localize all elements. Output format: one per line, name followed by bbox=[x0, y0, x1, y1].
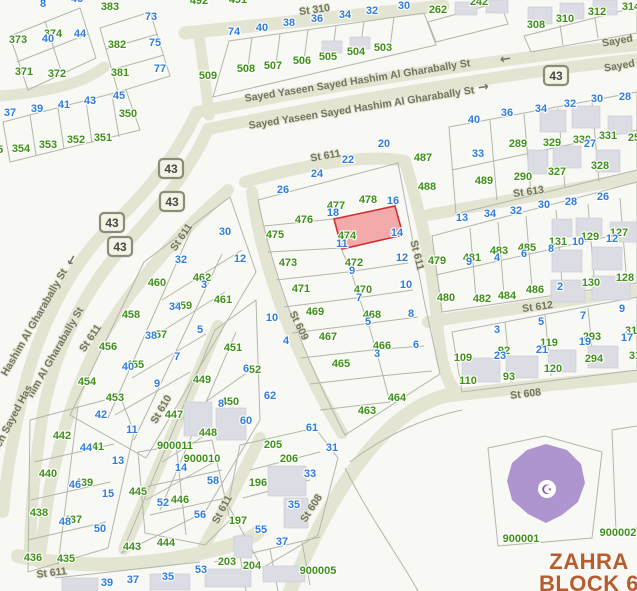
lot-number: 10 bbox=[400, 279, 412, 291]
parcel-number: 109 bbox=[454, 352, 472, 364]
lot-number: 16 bbox=[387, 195, 399, 207]
parcel-number: 128 bbox=[616, 272, 634, 284]
lot-number: 46 bbox=[71, 0, 83, 5]
lot-number: 30 bbox=[219, 226, 231, 238]
parcel-number: 482 bbox=[473, 293, 491, 305]
parcel-number: 435 bbox=[57, 553, 75, 565]
lot-number: 7 bbox=[356, 292, 362, 304]
parcel-number: 471 bbox=[292, 283, 310, 295]
parcel-number: 197 bbox=[229, 515, 247, 527]
lot-number: 11 bbox=[126, 424, 138, 436]
parcel-number: 464 bbox=[388, 392, 407, 404]
parcel-number: 475 bbox=[266, 229, 284, 241]
lot-number: 35 bbox=[162, 571, 174, 583]
parcel-number: 203 bbox=[218, 556, 236, 568]
parcel-number: 438 bbox=[30, 507, 48, 519]
parcel-number: 491 bbox=[229, 0, 247, 6]
lot-number: 61 bbox=[306, 422, 318, 434]
parcel-number: 507 bbox=[264, 60, 282, 72]
parcel-number: 489 bbox=[475, 175, 493, 187]
parcel-number: 448 bbox=[199, 427, 217, 439]
lot-number: 34 bbox=[535, 103, 548, 115]
parcel-number: 460 bbox=[148, 277, 166, 289]
parcel-number: 294 bbox=[585, 353, 604, 365]
lot-number: 60 bbox=[240, 415, 252, 427]
lot-number: 28 bbox=[619, 91, 631, 103]
lot-number: 74 bbox=[228, 26, 241, 38]
lot-number: 34 bbox=[484, 208, 497, 220]
building bbox=[552, 219, 572, 237]
lot-number: 41 bbox=[58, 99, 70, 111]
parcel-number: 205 bbox=[264, 439, 282, 451]
lot-number: 3 bbox=[201, 279, 207, 291]
lot-number: 13 bbox=[112, 455, 124, 467]
lot-number: 24 bbox=[311, 168, 324, 180]
parcel-number: 314 bbox=[622, 1, 637, 13]
parcel-number: 453 bbox=[106, 392, 124, 404]
lot-number: 46 bbox=[69, 479, 81, 491]
parcel-number: 480 bbox=[437, 292, 455, 304]
parcel-number: 329 bbox=[543, 137, 561, 149]
parcel-number: 478 bbox=[359, 194, 377, 206]
lot-number: 77 bbox=[154, 63, 166, 75]
lot-number: 7 bbox=[580, 310, 586, 322]
parcel-number: 331 bbox=[599, 130, 617, 142]
building bbox=[572, 106, 600, 128]
parcel-number: 120 bbox=[544, 363, 562, 375]
lot-number: 58 bbox=[207, 475, 219, 487]
parcel-number: 436 bbox=[24, 552, 42, 564]
parcel-number: 355 bbox=[0, 144, 3, 156]
lot-number: 6 bbox=[243, 363, 249, 375]
mosque-icon: ☪ bbox=[541, 483, 553, 498]
lot-number: 12 bbox=[234, 253, 246, 265]
parcel-number: 289 bbox=[509, 138, 527, 150]
parcel-number: 382 bbox=[108, 39, 126, 51]
parcel-number: 473 bbox=[279, 257, 297, 269]
map-canvas[interactable]: ☪ 37337437137238338238135035135235335435… bbox=[0, 0, 637, 591]
lot-number: 75 bbox=[149, 37, 161, 49]
parcel-number: 442 bbox=[53, 430, 71, 442]
lot-number: 37 bbox=[4, 107, 16, 119]
route-43-badge: 43 bbox=[160, 192, 184, 211]
lot-number: 14 bbox=[175, 462, 188, 474]
lot-number: 10 bbox=[266, 312, 278, 324]
parcel-number: 487 bbox=[414, 152, 432, 164]
parcel-number: 458 bbox=[122, 309, 140, 321]
building bbox=[268, 466, 306, 496]
lot-number: 9 bbox=[349, 265, 355, 277]
parcel-number: 93 bbox=[503, 371, 515, 383]
parcel-number: 352 bbox=[67, 134, 85, 146]
lot-number: 7 bbox=[174, 351, 180, 363]
parcel-number: 31 bbox=[629, 350, 637, 362]
lot-number: 36 bbox=[501, 107, 513, 119]
lot-number: 39 bbox=[31, 103, 43, 115]
parcel-number: 445 bbox=[129, 486, 147, 498]
lot-number: 56 bbox=[194, 509, 206, 521]
lot-number: 26 bbox=[597, 191, 609, 203]
lot-number: 9 bbox=[154, 378, 160, 390]
lot-number: 18 bbox=[327, 207, 339, 219]
parcel-number: 900011 bbox=[157, 440, 193, 452]
lot-number: 48 bbox=[59, 516, 71, 528]
parcel-number: 508 bbox=[237, 63, 255, 75]
parcel-number: 373 bbox=[9, 34, 27, 46]
lot-number: 42 bbox=[95, 409, 107, 421]
mosque-building: ☪ bbox=[507, 444, 585, 523]
lot-number: 30 bbox=[538, 199, 550, 211]
lot-number: 32 bbox=[510, 205, 522, 217]
lot-number: 22 bbox=[342, 154, 354, 166]
block-name-label: ZAHRA BLOCK 6 bbox=[539, 549, 637, 591]
parcel-number: 354 bbox=[12, 143, 31, 155]
parcel-number: 196 bbox=[249, 477, 267, 489]
parcel-number: 454 bbox=[78, 376, 97, 388]
parcel-number: 488 bbox=[418, 181, 436, 193]
lot-number: 31 bbox=[326, 442, 338, 454]
lot-number: 39 bbox=[101, 577, 113, 589]
building bbox=[62, 578, 98, 591]
parcel-number: 312 bbox=[588, 6, 606, 18]
lot-number: 15 bbox=[102, 488, 114, 500]
road-st-611-east bbox=[405, 161, 456, 392]
lot-number: 62 bbox=[264, 390, 276, 402]
lot-number: 10 bbox=[572, 236, 584, 248]
lot-number: 5 bbox=[197, 324, 203, 336]
route-badge-number: 43 bbox=[165, 195, 179, 209]
block-name-line2: BLOCK 6 bbox=[539, 571, 637, 591]
parcel-number: 456 bbox=[99, 341, 117, 353]
lot-number: 32 bbox=[366, 5, 378, 17]
parcel-number: 353 bbox=[39, 139, 57, 151]
street-name-label: St 608 bbox=[510, 386, 542, 402]
lot-number: 38 bbox=[283, 17, 295, 29]
parcel-number: 328 bbox=[591, 160, 609, 172]
lot-number: 5 bbox=[538, 316, 544, 328]
parcel-number: 506 bbox=[293, 55, 311, 67]
parcel-number: 351 bbox=[94, 132, 112, 144]
lot-number: 73 bbox=[145, 11, 157, 23]
parcel-number: 900010 bbox=[184, 453, 221, 465]
parcel-number: 900002 bbox=[600, 527, 637, 539]
route-43-badge: 43 bbox=[100, 213, 124, 232]
lot-number: 40 bbox=[256, 22, 268, 34]
lot-number: 3 bbox=[494, 324, 500, 336]
lot-number: 37 bbox=[276, 536, 288, 548]
lot-number: 44 bbox=[80, 442, 93, 454]
lot-number: 12 bbox=[396, 252, 408, 264]
lot-number: 40 bbox=[122, 361, 134, 373]
parcel-number: 479 bbox=[428, 255, 446, 267]
building bbox=[234, 536, 252, 558]
lot-number: 26 bbox=[277, 184, 289, 196]
parcel-number: 449 bbox=[193, 374, 211, 386]
lot-number: 34 bbox=[169, 301, 182, 313]
parcel-number: 900005 bbox=[300, 565, 337, 577]
parcel-number: 492 bbox=[190, 0, 208, 7]
parcel-number: 900001 bbox=[503, 533, 540, 545]
lot-number: 4 bbox=[494, 252, 501, 264]
parcel-number: 130 bbox=[582, 277, 600, 289]
parcel-number: 505 bbox=[319, 51, 337, 63]
lot-number: 44 bbox=[74, 28, 87, 40]
parcel-number: 446 bbox=[171, 494, 189, 506]
lot-number: 3 bbox=[374, 348, 380, 360]
lot-number: 33 bbox=[472, 148, 484, 160]
parcel-number: 484 bbox=[498, 290, 517, 302]
lot-number: 33 bbox=[304, 468, 316, 480]
lot-number: 35 bbox=[288, 499, 300, 511]
lot-number: 11 bbox=[336, 238, 348, 250]
parcel-number: 443 bbox=[123, 541, 141, 553]
lot-number: 20 bbox=[378, 138, 390, 150]
lot-number: 28 bbox=[565, 196, 577, 208]
lot-number: 8 bbox=[548, 243, 554, 255]
lot-number: 21 bbox=[536, 344, 548, 356]
parcel-number: 310 bbox=[556, 13, 574, 25]
route-badge-number: 43 bbox=[105, 216, 119, 230]
parcel-map[interactable]: ☪ 37337437137238338238135035135235335435… bbox=[0, 0, 637, 591]
lot-number: 38 bbox=[145, 330, 157, 342]
lot-number: 34 bbox=[339, 9, 352, 21]
parcel-lines-block-900005 bbox=[345, 410, 462, 591]
lot-number: 55 bbox=[255, 524, 267, 536]
parcel-number: 206 bbox=[280, 453, 298, 465]
parcel-number: 383 bbox=[101, 1, 119, 13]
parcel-number: 463 bbox=[358, 405, 376, 417]
lot-number: 52 bbox=[157, 497, 169, 509]
parcel-number: 461 bbox=[214, 294, 232, 306]
parcel-number: 204 bbox=[243, 560, 262, 572]
parcel-number: 381 bbox=[111, 67, 129, 79]
building bbox=[552, 250, 582, 272]
lot-number: 43 bbox=[84, 95, 96, 107]
lot-number: 8 bbox=[408, 308, 414, 320]
parcel-number: 469 bbox=[306, 306, 324, 318]
parcel-number: 504 bbox=[347, 46, 366, 58]
parcel-number: 290 bbox=[514, 171, 532, 183]
lot-number: 2 bbox=[557, 281, 563, 293]
parcel-number: 372 bbox=[48, 68, 66, 80]
parcel-number: 444 bbox=[157, 537, 176, 549]
parcel-number: 110 bbox=[459, 375, 477, 387]
lot-number: 45 bbox=[113, 90, 125, 102]
lot-number: 40 bbox=[42, 33, 54, 45]
lot-number: 32 bbox=[564, 98, 576, 110]
lot-number: 13 bbox=[456, 212, 468, 224]
lot-number: 27 bbox=[584, 138, 596, 150]
route-badge-number: 43 bbox=[164, 162, 178, 176]
parcel-number: 476 bbox=[295, 214, 313, 226]
lot-number: 9 bbox=[466, 256, 472, 268]
lot-number: 53 bbox=[195, 564, 207, 576]
lot-number: 30 bbox=[591, 93, 603, 105]
lot-number: 8 bbox=[218, 398, 224, 410]
parcel-number: 262 bbox=[429, 4, 447, 16]
lot-number: 37 bbox=[127, 574, 139, 586]
lot-number: 19 bbox=[579, 336, 591, 348]
parcel-number: 486 bbox=[526, 284, 544, 296]
route-43-badge: 43 bbox=[108, 237, 132, 256]
parcel-number: 509 bbox=[199, 70, 217, 82]
parcel-number: 465 bbox=[332, 358, 350, 370]
lot-number: 9 bbox=[619, 303, 625, 315]
route-badge-number: 43 bbox=[549, 69, 563, 83]
parcel-number: 350 bbox=[119, 108, 137, 120]
route-43-badge: 43 bbox=[159, 159, 183, 178]
building bbox=[553, 146, 581, 168]
lot-number: 30 bbox=[398, 0, 410, 12]
lot-number: 14 bbox=[391, 227, 404, 239]
parcel-number: 371 bbox=[15, 66, 33, 78]
parcel-number: 242 bbox=[470, 0, 488, 8]
lot-number: 8 bbox=[40, 0, 46, 10]
parcel-number: 327 bbox=[548, 166, 566, 178]
lot-number: 6 bbox=[413, 339, 419, 351]
lot-number: 32 bbox=[175, 254, 187, 266]
parcel-number: 25 bbox=[628, 132, 637, 144]
parcel-number: 440 bbox=[39, 468, 57, 480]
parcel-number: 451 bbox=[224, 342, 242, 354]
lot-number: 12 bbox=[606, 233, 618, 245]
lot-number: 40 bbox=[468, 114, 480, 126]
route-badge-number: 43 bbox=[113, 240, 127, 254]
lot-number: 5 bbox=[365, 316, 371, 328]
parcel-number: 308 bbox=[527, 19, 545, 31]
parcel-number: 503 bbox=[374, 42, 392, 54]
lot-number: 50 bbox=[94, 523, 106, 535]
building bbox=[592, 247, 622, 270]
parcel-number: 467 bbox=[319, 331, 337, 343]
building bbox=[486, 0, 508, 13]
lot-number: 6 bbox=[521, 248, 527, 260]
lot-number: 17 bbox=[621, 332, 633, 344]
route-43-badge: 43 bbox=[544, 66, 568, 85]
lot-number: 4 bbox=[283, 335, 290, 347]
lot-number: 23 bbox=[494, 350, 506, 362]
parcel-lines-block-383 bbox=[100, 12, 170, 92]
